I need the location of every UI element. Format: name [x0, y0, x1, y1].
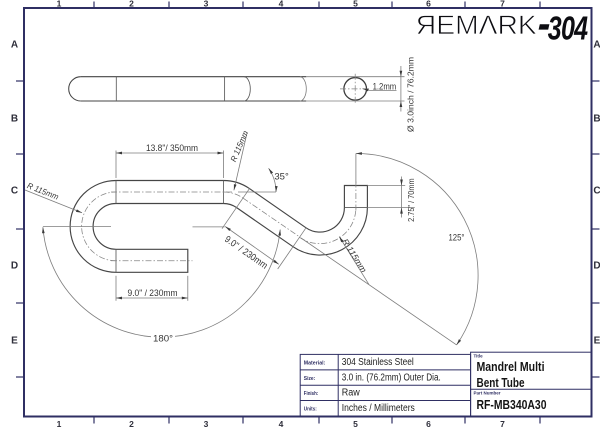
svg-text:Finish:: Finish: [304, 391, 319, 397]
svg-text:Size:: Size: [304, 376, 316, 382]
svg-text:1: 1 [57, 0, 62, 8]
svg-text:7: 7 [500, 419, 505, 428]
svg-text:4: 4 [279, 419, 284, 428]
svg-text:RF-MB340A30: RF-MB340A30 [477, 397, 547, 412]
svg-text:4: 4 [279, 0, 284, 8]
svg-text:5: 5 [353, 0, 358, 8]
svg-text:Units:: Units: [304, 406, 317, 412]
svg-text:7: 7 [500, 0, 505, 8]
svg-text:5: 5 [353, 419, 358, 428]
svg-text:125°: 125° [449, 233, 465, 243]
svg-text:ЯEMΛRK: ЯEMΛRK [416, 10, 537, 40]
svg-text:180°: 180° [153, 334, 173, 345]
svg-text:304 Stainless Steel: 304 Stainless Steel [342, 357, 414, 368]
svg-text:C: C [11, 186, 18, 197]
svg-text:C: C [593, 186, 600, 197]
svg-text:Inches / Millimeters: Inches / Millimeters [342, 403, 415, 414]
svg-text:304: 304 [548, 10, 588, 47]
svg-text:Bent Tube: Bent Tube [477, 375, 525, 390]
svg-text:A: A [593, 40, 600, 51]
svg-text:Material:: Material: [304, 360, 326, 366]
svg-text:Part Number: Part Number [474, 391, 501, 396]
svg-text:6: 6 [426, 0, 431, 8]
svg-text:6: 6 [426, 419, 431, 428]
svg-text:Mandrel Multi: Mandrel Multi [477, 359, 545, 374]
svg-text:3.0 in. (76.2mm) Outer Dia.: 3.0 in. (76.2mm) Outer Dia. [342, 372, 441, 383]
svg-text:E: E [594, 336, 600, 347]
svg-text:1.2mm: 1.2mm [373, 81, 397, 91]
svg-text:2: 2 [129, 0, 134, 8]
svg-text:B: B [593, 114, 600, 125]
svg-text:9.0" / 230mm: 9.0" / 230mm [128, 288, 178, 299]
svg-text:A: A [11, 40, 18, 51]
svg-text:1: 1 [57, 419, 62, 428]
svg-text:35°: 35° [274, 171, 289, 182]
svg-text:3: 3 [204, 0, 209, 8]
svg-text:E: E [11, 336, 18, 347]
svg-text:Ø 3.0inch / 76.2mm: Ø 3.0inch / 76.2mm [406, 57, 416, 132]
svg-text:2.75" / 70mm: 2.75" / 70mm [406, 178, 416, 222]
svg-text:B: B [11, 114, 18, 125]
svg-text:3: 3 [204, 419, 209, 428]
svg-text:2: 2 [129, 419, 134, 428]
svg-text:D: D [11, 261, 18, 272]
svg-text:13.8"/ 350mm: 13.8"/ 350mm [146, 143, 198, 154]
svg-text:D: D [593, 261, 600, 272]
svg-text:Raw: Raw [342, 388, 361, 399]
